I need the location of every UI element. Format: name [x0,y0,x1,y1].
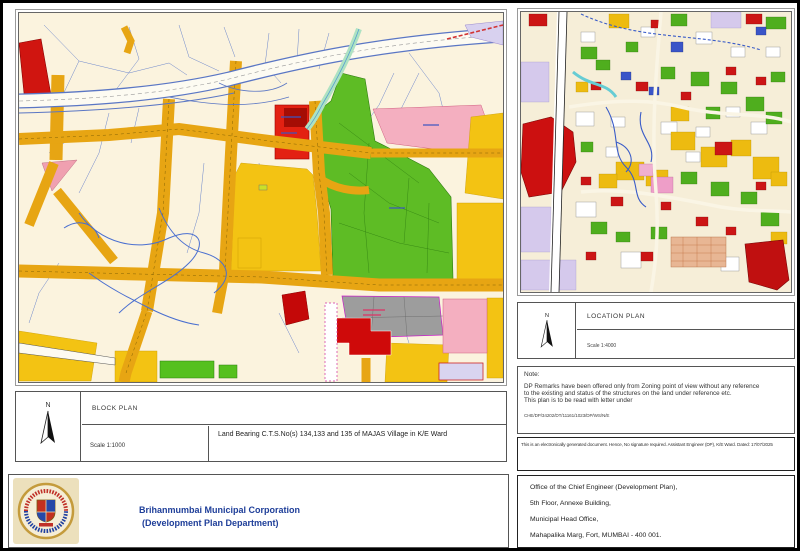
block-plan-north-cell: N [16,392,81,461]
organization-name-line2: (Development Plan Department) [139,517,300,530]
north-label: N [45,402,50,409]
organization-name-line1: Brihanmumbai Municipal Corporation [139,504,300,517]
location-plan-map [517,8,795,296]
note-heading: Note: [524,371,788,378]
block-plan-map [15,9,507,386]
block-plan-description: Land Bearing C.T.S.No(s) 134,133 and 135… [210,426,506,461]
note-reference-number: CHE/DP/34202/DT/11161/1023/DP/WS/N/E [524,413,788,418]
north-arrow-icon: N [537,309,557,353]
block-plan-map-drawing [19,13,503,382]
north-arrow-icon: N [36,398,60,450]
north-label: N [544,313,548,319]
office-address-line4: Mahapalika Marg, Fort, MUMBAI - 400 001. [530,532,794,539]
block-plan-scale: Scale 1:1000 [82,426,209,461]
location-plan-north-cell: N [518,303,576,358]
location-plan-info-box: N LOCATION PLAN Scale 1:4000 [517,302,795,359]
office-address-line3: Municipal Head Office, [530,516,794,523]
dp-remarks-sheet: N BLOCK PLAN Scale 1:1000 Land Bearing C… [0,0,800,551]
bmc-logo [13,478,79,544]
disclaimer-box: This is an electronically generated docu… [517,437,795,471]
note-line2: to the existing and status of the struct… [524,390,788,397]
office-address-box: Office of the Chief Engineer (Developmen… [517,475,795,548]
office-address-line1: Office of the Chief Engineer (Developmen… [530,484,794,491]
block-plan-title: BLOCK PLAN [82,392,507,425]
disclaimer-text: This is an electronically generated docu… [521,442,791,447]
organization-name: Brihanmumbai Municipal Corporation (Deve… [139,504,300,530]
location-plan-scale: Scale 1:4000 [577,331,795,358]
note-line1: DP Remarks have been offered only from Z… [524,383,788,390]
location-plan-map-drawing [521,12,791,292]
bmc-emblem-icon [13,478,79,544]
location-plan-title: LOCATION PLAN [577,303,795,330]
office-address-line2: 5th Floor, Annexe Building, [530,500,794,507]
note-box: Note: DP Remarks have been offered only … [517,366,795,434]
block-plan-info-box: N BLOCK PLAN Scale 1:1000 Land Bearing C… [15,391,507,462]
note-line3: This plan is to be read with letter unde… [524,397,788,404]
organization-footer-box: Brihanmumbai Municipal Corporation (Deve… [8,474,509,548]
